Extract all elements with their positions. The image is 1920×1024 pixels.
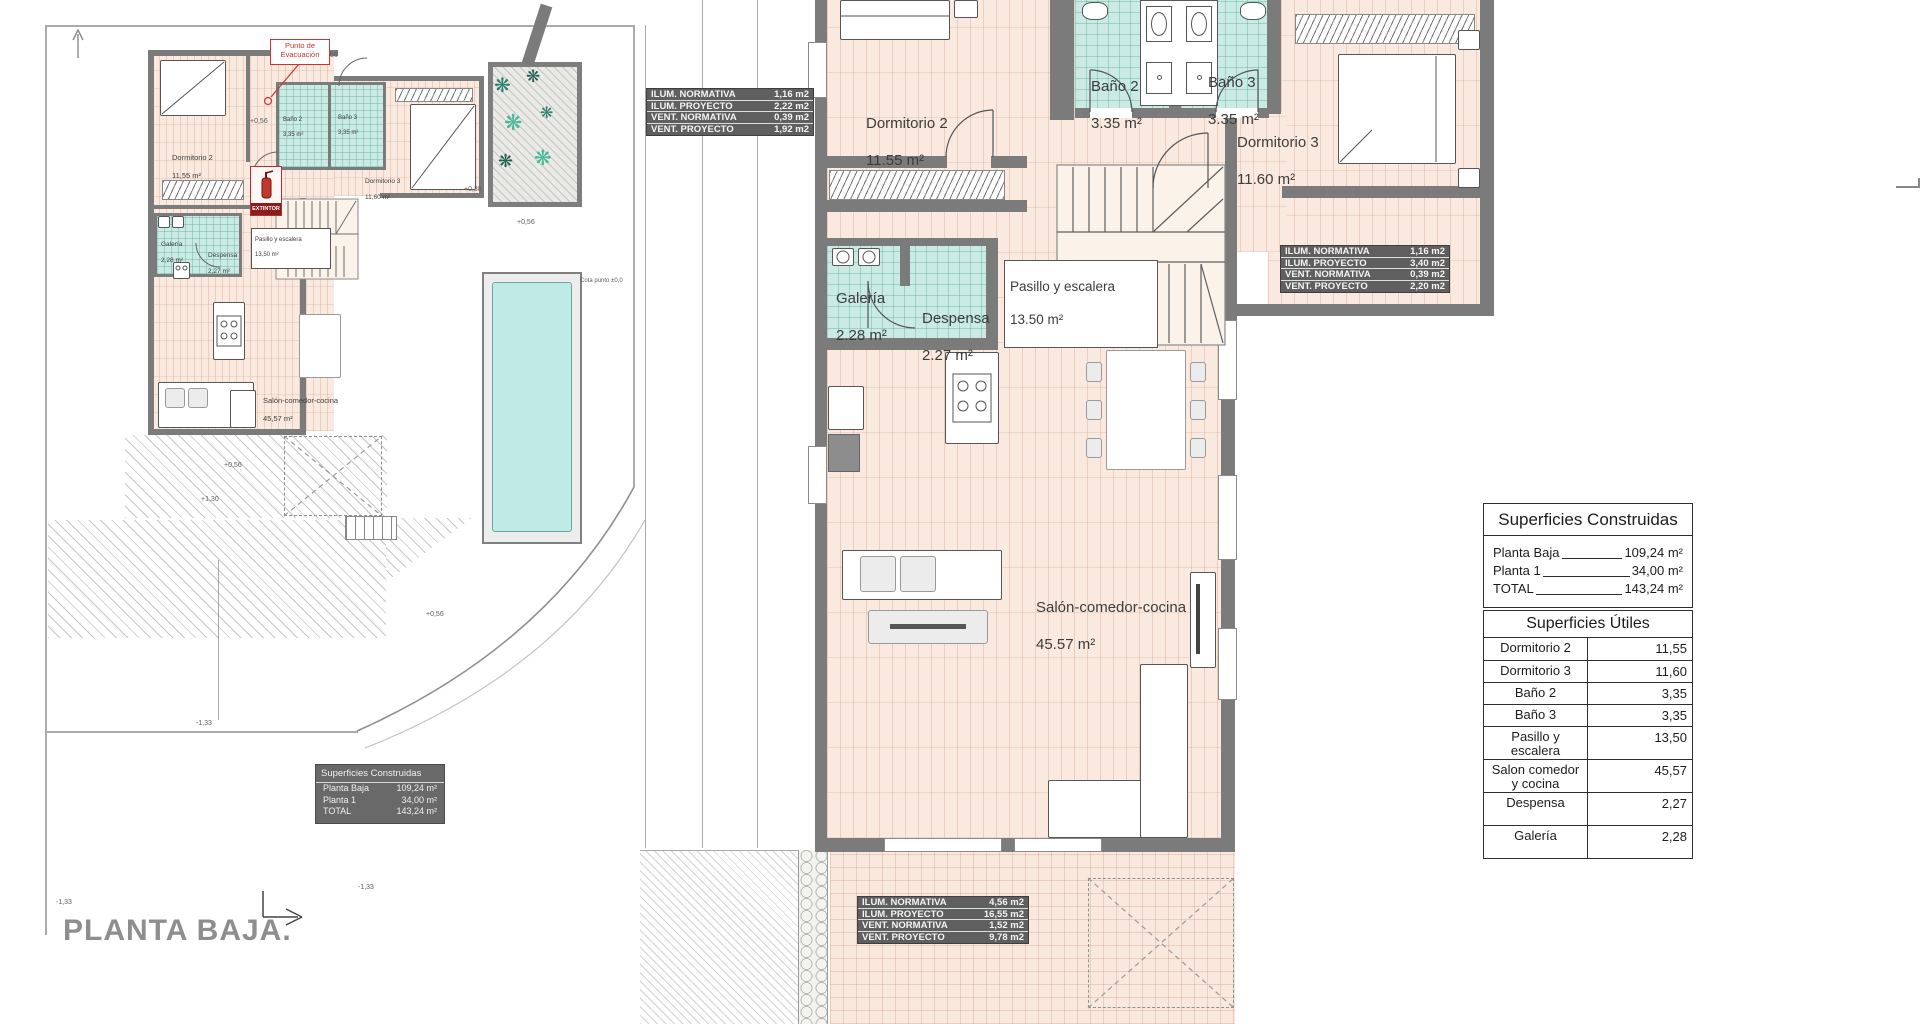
bed-dorm3 bbox=[1338, 54, 1456, 164]
level-label: +0,56 bbox=[517, 219, 535, 226]
ilum-value: 1,16 m2 bbox=[774, 89, 809, 100]
construidas-row: Planta Baja109,24 m² bbox=[316, 783, 444, 795]
stone-wall bbox=[798, 850, 828, 1024]
plant-icon: ❋ bbox=[498, 152, 513, 170]
ilum-row: VENT. PROYECTO9,78 m2 bbox=[858, 932, 1028, 944]
ilum-value: 0,39 m2 bbox=[774, 112, 809, 123]
construidas-row: TOTAL143,24 m² bbox=[1493, 580, 1683, 598]
room-name: Baño 3 bbox=[1208, 74, 1259, 92]
room-name: Baño 2 bbox=[283, 117, 303, 124]
ilum-row: VENT. PROYECTO1,92 m2 bbox=[647, 124, 813, 136]
sofa-cushion bbox=[165, 388, 185, 408]
panel-superficies-utiles: Superficies Útiles Dormitorio 211,55 Dor… bbox=[1483, 610, 1693, 859]
row-label: Planta 1 bbox=[1493, 562, 1541, 580]
ilum-row: ILUM. PROYECTO16,55 m2 bbox=[858, 909, 1028, 921]
ilum-table-right: ILUM. NORMATIVA1,16 m2 ILUM. PROYECTO3,4… bbox=[1280, 245, 1450, 293]
ilum-label: VENT. PROYECTO bbox=[651, 124, 734, 136]
dining-chair bbox=[1086, 362, 1102, 382]
plant-icon: ❋ bbox=[526, 68, 540, 85]
ilum-row: VENT. NORMATIVA0,39 m2 bbox=[1281, 269, 1449, 281]
utiles-row: Baño 33,35 bbox=[1484, 704, 1692, 726]
row-value: 13,50 bbox=[1588, 727, 1692, 759]
room-label-dormitorio2: Dormitorio 2 11.55 m² bbox=[866, 97, 948, 188]
dining-chair bbox=[1190, 362, 1206, 382]
ilum-table-top-left: ILUM. NORMATIVA1,16 m2 ILUM. PROYECTO2,2… bbox=[646, 88, 814, 136]
row-value: 34,00 m² bbox=[1632, 562, 1683, 580]
tv bbox=[890, 624, 966, 629]
ilum-label: ILUM. PROYECTO bbox=[862, 909, 944, 920]
ilum-value: 0,39 m2 bbox=[1410, 269, 1445, 280]
room-area: 45,57 m² bbox=[263, 414, 338, 423]
room-label-pasillo: Pasillo y escalera 13.50 m² bbox=[1004, 260, 1158, 348]
right-wall-west bbox=[815, 0, 827, 850]
toilet-bath2 bbox=[1082, 2, 1108, 20]
plant-icon: ❋ bbox=[534, 148, 552, 169]
nightstand bbox=[1458, 168, 1480, 188]
row-label: Planta Baja bbox=[323, 783, 369, 795]
level-label: -1,33 bbox=[56, 899, 72, 906]
room-area: 11.60 m² bbox=[1237, 171, 1319, 189]
construidas-row: Planta 134,00 m² bbox=[1493, 562, 1683, 580]
row-value: 109,24 m² bbox=[396, 783, 437, 795]
room-area: 2,27 m² bbox=[208, 268, 237, 276]
room-name: Dormitorio 3 bbox=[365, 178, 400, 186]
construidas-row: Planta Baja109,24 m² bbox=[1493, 544, 1683, 562]
row-value: 11,55 bbox=[1588, 638, 1692, 660]
utiles-row: Dormitorio 211,55 bbox=[1484, 638, 1692, 660]
room-label-salon: Salón-comedor-cocina 45.57 m² bbox=[1036, 581, 1186, 672]
level-label: +0,56 bbox=[250, 118, 268, 125]
plan-title: PLANTA BAJA. bbox=[63, 914, 292, 948]
ilum-row: ILUM. NORMATIVA4,56 m2 bbox=[858, 897, 1028, 909]
row-value: 3,35 bbox=[1588, 705, 1692, 726]
level-label: -1,33 bbox=[358, 884, 374, 891]
terrace-hatch-corner bbox=[386, 518, 472, 582]
row-label: TOTAL bbox=[323, 806, 351, 818]
room-area: 2.27 m² bbox=[922, 347, 990, 365]
ilum-value: 2,20 m2 bbox=[1410, 281, 1445, 293]
utiles-row: Dormitorio 311,60 bbox=[1484, 660, 1692, 682]
room-area: 45.57 m² bbox=[1036, 636, 1186, 654]
row-value: 143,24 m² bbox=[1624, 580, 1683, 598]
room-area: 11,60 m² bbox=[365, 194, 400, 202]
room-name: Salón-comedor-cocina bbox=[263, 396, 338, 405]
row-label: Galería bbox=[1484, 826, 1588, 858]
ilum-label: ILUM. NORMATIVA bbox=[1285, 246, 1370, 257]
cota-label: Cota punto ±0,0 bbox=[580, 278, 623, 284]
room-name: Dormitorio 2 bbox=[866, 115, 948, 133]
row-value: 2,27 bbox=[1588, 793, 1692, 825]
construidas-row: TOTAL143,24 m² bbox=[316, 806, 444, 818]
room-area: 2,28 m² bbox=[161, 257, 183, 265]
level-label: +0,56 bbox=[224, 462, 242, 469]
row-label: Dormitorio 3 bbox=[1484, 661, 1588, 682]
room-label-bano3-left: Baño 3 3,35 m² bbox=[338, 108, 358, 145]
ilum-row: ILUM. NORMATIVA1,16 m2 bbox=[1281, 246, 1449, 258]
plot-boundary-bottom bbox=[45, 731, 358, 733]
left-bath-divider-wall bbox=[328, 84, 331, 168]
construidas-box-title: Superficies Construidas bbox=[316, 765, 444, 783]
room-name: Pasillo y escalera bbox=[255, 237, 327, 244]
washer-galeria bbox=[832, 248, 854, 266]
sofa-cushion bbox=[860, 556, 896, 592]
ilum-value: 16,55 m2 bbox=[984, 909, 1024, 920]
construidas-row: Planta 134,00 m² bbox=[316, 795, 444, 807]
row-value: 109,24 m² bbox=[1624, 544, 1683, 562]
nightstand bbox=[954, 0, 978, 18]
sliding-door bbox=[884, 838, 1002, 852]
extinguisher-icon bbox=[251, 168, 281, 204]
pool bbox=[492, 282, 572, 532]
left-wing-wall-top bbox=[334, 76, 484, 81]
room-label-b2: Baño 2 3.35 m² bbox=[1091, 60, 1142, 151]
ilum-row: ILUM. PROYECTO3,40 m2 bbox=[1281, 258, 1449, 270]
panel-title: Superficies Útiles bbox=[1484, 611, 1692, 638]
nightstand bbox=[1458, 30, 1480, 50]
plot-boundary-right bbox=[633, 25, 635, 487]
kitchen-island-left bbox=[213, 302, 245, 360]
ilum-value: 1,92 m2 bbox=[774, 124, 809, 136]
room-name: Dormitorio 2 bbox=[172, 153, 213, 162]
bath3-east-wall bbox=[1267, 0, 1281, 114]
room-name: Salón-comedor-cocina bbox=[1036, 599, 1186, 617]
row-value: 143,24 m² bbox=[396, 806, 437, 818]
row-label: Pasillo y escalera bbox=[1484, 727, 1588, 759]
level-label: +1,30 bbox=[201, 496, 219, 503]
ilum-row: VENT. PROYECTO2,20 m2 bbox=[1281, 281, 1449, 293]
utiles-row: Galería2,28 bbox=[1484, 825, 1692, 858]
bed-left-dorm3 bbox=[410, 104, 476, 190]
room-area: 11,55 m² bbox=[172, 171, 213, 180]
ilum-table-bottom: ILUM. NORMATIVA4,56 m2 ILUM. PROYECTO16,… bbox=[857, 896, 1029, 944]
ilum-value: 3,40 m2 bbox=[1410, 258, 1445, 269]
room-area: 3.35 m² bbox=[1091, 115, 1142, 133]
room-name: Baño 3 bbox=[338, 115, 358, 122]
left-wing-wall-east bbox=[479, 76, 484, 198]
plant-icon: ❋ bbox=[540, 106, 553, 122]
plot-boundary-left bbox=[45, 25, 47, 935]
row-label: TOTAL bbox=[1493, 580, 1534, 598]
dining-chair bbox=[1190, 400, 1206, 420]
exterior-steps bbox=[345, 516, 397, 540]
terrace-hatch bbox=[48, 520, 386, 638]
row-label: Planta 1 bbox=[323, 795, 356, 807]
room-area: 13,50 m² bbox=[255, 252, 327, 259]
tv-screen bbox=[1196, 584, 1200, 654]
row-value: 3,35 bbox=[1588, 683, 1692, 704]
ilum-value: 9,78 m2 bbox=[989, 932, 1024, 944]
room-name: Baño 2 bbox=[1091, 78, 1142, 96]
sofa-cushion bbox=[188, 388, 208, 408]
basin bbox=[1146, 6, 1172, 42]
edge-tick bbox=[1896, 186, 1920, 188]
dining-chair bbox=[1190, 438, 1206, 458]
room-label-galeria-left: Galería 2,28 m² bbox=[161, 233, 183, 273]
ilum-label: VENT. PROYECTO bbox=[1285, 281, 1368, 293]
room-label-bano2-left: Baño 2 3,35 m² bbox=[283, 110, 303, 147]
row-label: Baño 3 bbox=[1484, 705, 1588, 726]
window bbox=[1218, 628, 1237, 700]
ilum-label: ILUM. NORMATIVA bbox=[862, 897, 947, 908]
plant-icon: ❋ bbox=[504, 112, 522, 134]
room-label-salon-left: Salón-comedor-cocina 45,57 m² bbox=[263, 387, 338, 433]
ilum-label: ILUM. PROYECTO bbox=[651, 101, 733, 112]
sidewalk-hatch bbox=[640, 850, 798, 1024]
room-label-galeria: Galería 2.28 m² bbox=[836, 272, 887, 363]
galeria-divider-stub bbox=[900, 246, 910, 286]
room-area: 3,35 m² bbox=[338, 130, 358, 137]
level-label: +0,38 bbox=[464, 186, 482, 193]
utiles-row: Despensa2,27 bbox=[1484, 792, 1692, 825]
plant-icon: ❋ bbox=[494, 76, 511, 96]
ilum-row: ILUM. PROYECTO2,22 m2 bbox=[647, 101, 813, 113]
room-label-despensa: Despensa 2.27 m² bbox=[922, 292, 990, 383]
wing-south-wall bbox=[1235, 304, 1494, 316]
ilum-row: VENT. NORMATIVA1,52 m2 bbox=[858, 920, 1028, 932]
left-partition-dorm2-south bbox=[152, 205, 250, 209]
window bbox=[1218, 320, 1237, 400]
dining-chair bbox=[1086, 400, 1102, 420]
underscore-fill bbox=[1543, 576, 1630, 577]
room-label-despensa-left: Despensa 2,27 m² bbox=[208, 244, 237, 284]
pergola-dashed-left bbox=[284, 436, 382, 516]
row-value: 11,60 bbox=[1588, 661, 1692, 682]
ilum-label: VENT. PROYECTO bbox=[862, 932, 945, 944]
row-label: Salon comedor y cocina bbox=[1484, 760, 1588, 792]
dining-table-left bbox=[299, 314, 341, 378]
sink bbox=[1146, 62, 1172, 94]
wardrobe-dorm3 bbox=[1295, 14, 1475, 44]
utiles-row: Pasillo y escalera13,50 bbox=[1484, 726, 1692, 759]
ilum-label: ILUM. NORMATIVA bbox=[651, 89, 736, 100]
row-value: 45,57 bbox=[1588, 760, 1692, 792]
underscore-fill bbox=[1562, 558, 1623, 559]
panel-title: Superficies Construidas bbox=[1484, 504, 1692, 536]
left-wall-west bbox=[148, 50, 154, 435]
row-label: Baño 2 bbox=[1484, 683, 1588, 704]
extinguisher-label: EXTINTOR bbox=[251, 203, 281, 215]
bed-left-dorm2 bbox=[160, 60, 226, 116]
room-area: 11.55 m² bbox=[866, 152, 948, 170]
ilum-value: 1,16 m2 bbox=[1410, 246, 1445, 257]
dryer-galeria bbox=[858, 248, 880, 266]
toilet-bath3 bbox=[1240, 2, 1266, 20]
row-label: Planta Baja bbox=[1493, 544, 1560, 562]
window bbox=[808, 446, 827, 504]
ilum-row: ILUM. NORMATIVA1,16 m2 bbox=[647, 89, 813, 101]
room-label-pasillo-left: Pasillo y escalera 13,50 m² bbox=[251, 228, 331, 269]
sliding-door bbox=[1014, 838, 1102, 852]
galeria-north-wall bbox=[815, 238, 998, 246]
row-value: 34,00 m² bbox=[401, 795, 437, 807]
angled-wall bbox=[522, 4, 553, 67]
level-label: +0,56 bbox=[426, 611, 444, 618]
row-label: Dormitorio 2 bbox=[1484, 638, 1588, 660]
ilum-value: 2,22 m2 bbox=[774, 101, 809, 112]
room-area: 13.50 m² bbox=[1010, 312, 1152, 328]
washer-left bbox=[158, 216, 170, 228]
level-label: -1,33 bbox=[196, 720, 212, 727]
wing-east-wall bbox=[1480, 0, 1494, 316]
plot-boundary-top bbox=[45, 25, 635, 27]
row-value: 2,28 bbox=[1588, 826, 1692, 858]
sofa-left-corner bbox=[230, 390, 256, 428]
evacuation-point-label: Punto de Evacuación bbox=[270, 39, 330, 65]
fridge bbox=[828, 386, 864, 430]
ilum-value: 4,56 m2 bbox=[989, 897, 1024, 908]
room-area: 3,35 m² bbox=[283, 132, 303, 139]
corridor-wall bbox=[815, 200, 1027, 212]
room-name: Dormitorio 3 bbox=[1237, 134, 1319, 152]
ilum-value: 1,52 m2 bbox=[989, 920, 1024, 931]
pergola-dashed-right bbox=[1088, 878, 1234, 1008]
dryer-left bbox=[172, 216, 184, 228]
room-name: Despensa bbox=[208, 252, 237, 260]
window bbox=[1218, 475, 1237, 560]
street-line bbox=[645, 25, 646, 848]
dorm2-south-wall bbox=[991, 156, 1027, 168]
room-label-dormitorio3: Dormitorio 3 11.60 m² bbox=[1237, 116, 1319, 207]
utiles-row: Baño 23,35 bbox=[1484, 682, 1692, 704]
pillar bbox=[1050, 0, 1074, 120]
floor-plan-document: ❋ ❋ ❋ ❋ ❋ ❋ Dormitorio 2 11,55 m² Baño 2… bbox=[0, 0, 1920, 1024]
room-name: Pasillo y escalera bbox=[1010, 279, 1152, 295]
bed-dorm2 bbox=[840, 0, 950, 40]
sofa-cushion bbox=[900, 556, 936, 592]
row-label: Despensa bbox=[1484, 793, 1588, 825]
extinguisher-badge: EXTINTOR bbox=[250, 166, 282, 216]
room-name: Despensa bbox=[922, 310, 990, 328]
ilum-label: ILUM. PROYECTO bbox=[1285, 258, 1367, 269]
room-label-dormitorio3-left: Dormitorio 3 11,60 m² bbox=[365, 170, 400, 210]
room-name: Galería bbox=[836, 290, 887, 308]
kitchen-counter bbox=[828, 434, 860, 472]
panel-superficies-construidas: Superficies Construidas Planta Baja109,2… bbox=[1483, 503, 1693, 608]
utiles-row: Salon comedor y cocina45,57 bbox=[1484, 759, 1692, 792]
room-area: 2.28 m² bbox=[836, 327, 887, 345]
dining-chair bbox=[1086, 438, 1102, 458]
underscore-fill bbox=[1536, 594, 1623, 595]
basin bbox=[1186, 6, 1212, 42]
room-label-dormitorio2-left: Dormitorio 2 11,55 m² bbox=[172, 144, 213, 190]
ilum-row: VENT. NORMATIVA0,39 m2 bbox=[647, 112, 813, 124]
tv-cabinet bbox=[1190, 572, 1216, 668]
ilum-label: VENT. NORMATIVA bbox=[1285, 269, 1371, 280]
room-name: Galería bbox=[161, 241, 183, 249]
construidas-box-left: Superficies Construidas Planta Baja109,2… bbox=[315, 764, 445, 824]
ilum-label: VENT. NORMATIVA bbox=[862, 920, 948, 931]
wardrobe-left-dorm3 bbox=[395, 88, 473, 102]
left-partition-dorm2 bbox=[246, 54, 250, 162]
l-sofa-side bbox=[1140, 664, 1188, 838]
dining-table bbox=[1106, 350, 1186, 470]
ilum-label: VENT. NORMATIVA bbox=[651, 112, 737, 123]
